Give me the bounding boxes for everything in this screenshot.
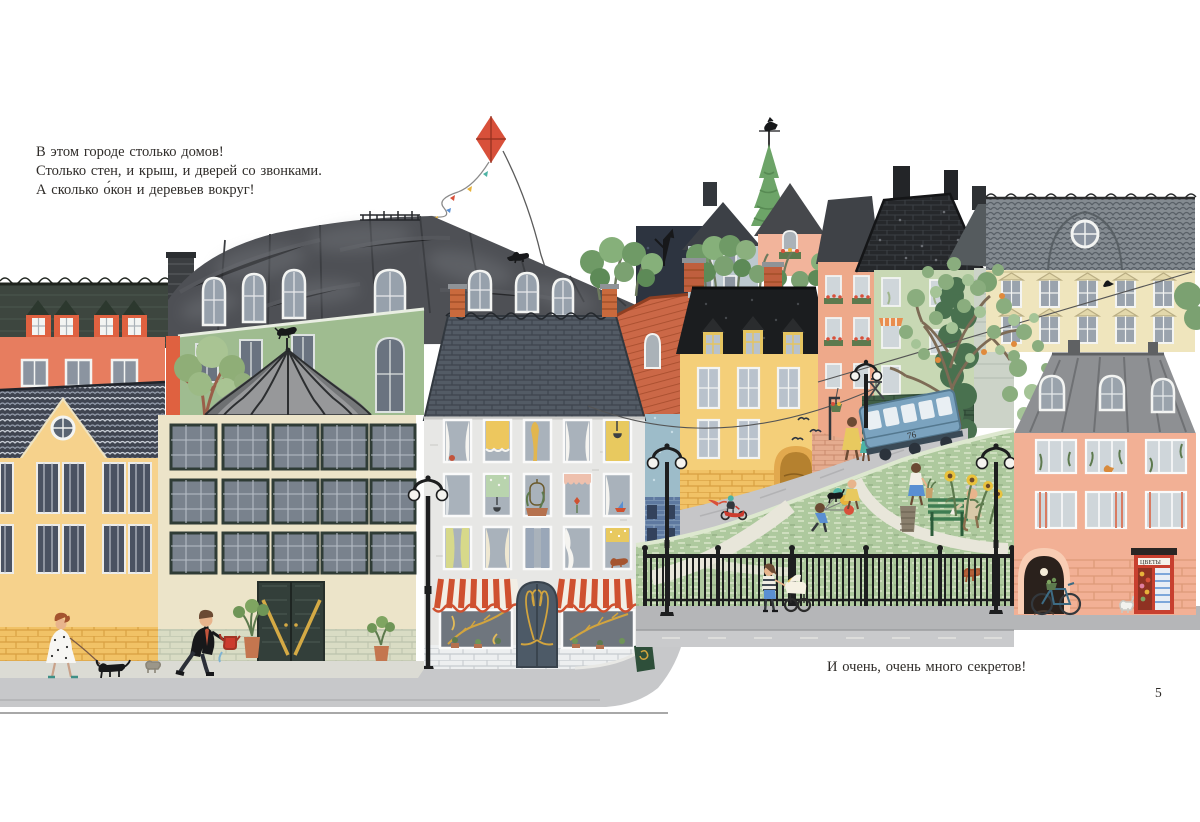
svg-text:И очень, очень много секретов!: И очень, очень много секретов! bbox=[827, 659, 1026, 675]
svg-text:В этом городе столько домов!: В этом городе столько домов! bbox=[36, 144, 224, 160]
svg-text:Столько стен, и крыш, и дверей: Столько стен, и крыш, и дверей со звонка… bbox=[36, 163, 322, 179]
svg-text:5: 5 bbox=[1155, 685, 1162, 700]
svg-text:ЦВЕТЫ: ЦВЕТЫ bbox=[1140, 560, 1162, 566]
svg-text:А сколько о́кон и деревьев вок: А сколько о́кон и деревьев вокруг! bbox=[36, 181, 255, 198]
